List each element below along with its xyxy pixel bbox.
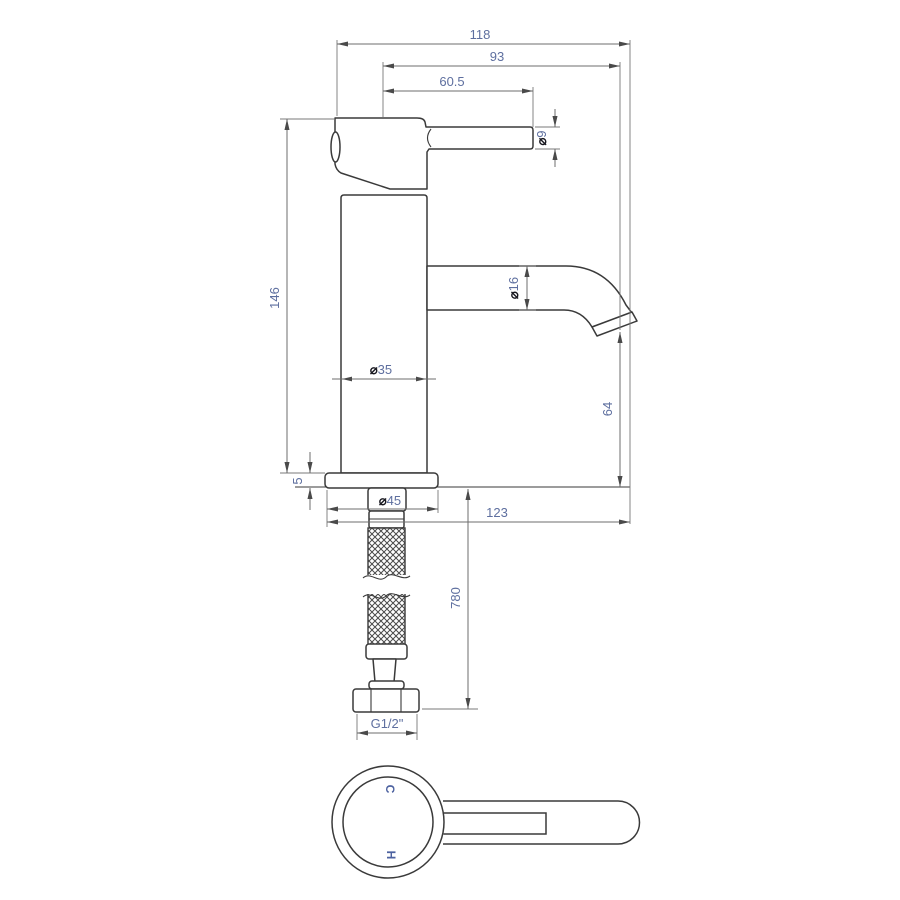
diameter-symbol: ⌀ — [534, 138, 549, 146]
dim-lever-dia: ⌀9 — [534, 130, 549, 145]
handle-plan-lever — [443, 801, 640, 844]
cold-marker: C — [383, 785, 397, 794]
dim-base-thickness: 5 — [290, 477, 305, 484]
handle-lever — [335, 118, 533, 189]
fitting-tube — [373, 659, 396, 682]
diameter-symbol: ⌀ — [506, 291, 521, 299]
hose-ferrule — [366, 644, 407, 659]
handle-screw-cap — [331, 132, 340, 162]
faucet-column — [341, 195, 427, 473]
hot-marker: H — [384, 851, 398, 860]
dim-total-width: 118 — [470, 27, 491, 42]
dim-body-height: 146 — [267, 287, 282, 309]
base-flange — [325, 473, 438, 488]
dim-thread: G1/2" — [371, 716, 404, 731]
front-view — [295, 118, 637, 712]
handle-top-view: C H — [332, 766, 640, 878]
dim-spout-dia: ⌀16 — [506, 277, 521, 299]
dim-hose-length: 780 — [448, 587, 463, 609]
spout — [427, 266, 632, 327]
dim-outlet-height: 64 — [600, 402, 615, 416]
diameter-symbol: ⌀ — [379, 493, 387, 508]
technical-drawing-page: 118 93 60.5 ⌀9 146 ⌀16 ⌀35 64 5 ⌀45 — [0, 0, 900, 900]
dim-base-dia: ⌀45 — [379, 493, 401, 508]
hex-nut — [353, 689, 419, 712]
extension-lines-left — [280, 119, 335, 473]
dim-spout-projection: 93 — [490, 49, 504, 64]
diameter-symbol: ⌀ — [370, 362, 378, 377]
dim-base-depth: 123 — [486, 505, 508, 520]
dim-handle-reach: 60.5 — [439, 74, 464, 89]
dim-column-dia: ⌀35 — [370, 362, 392, 377]
faucet-technical-drawing: 118 93 60.5 ⌀9 146 ⌀16 ⌀35 64 5 ⌀45 — [0, 0, 900, 900]
fitting-collar — [369, 681, 404, 689]
